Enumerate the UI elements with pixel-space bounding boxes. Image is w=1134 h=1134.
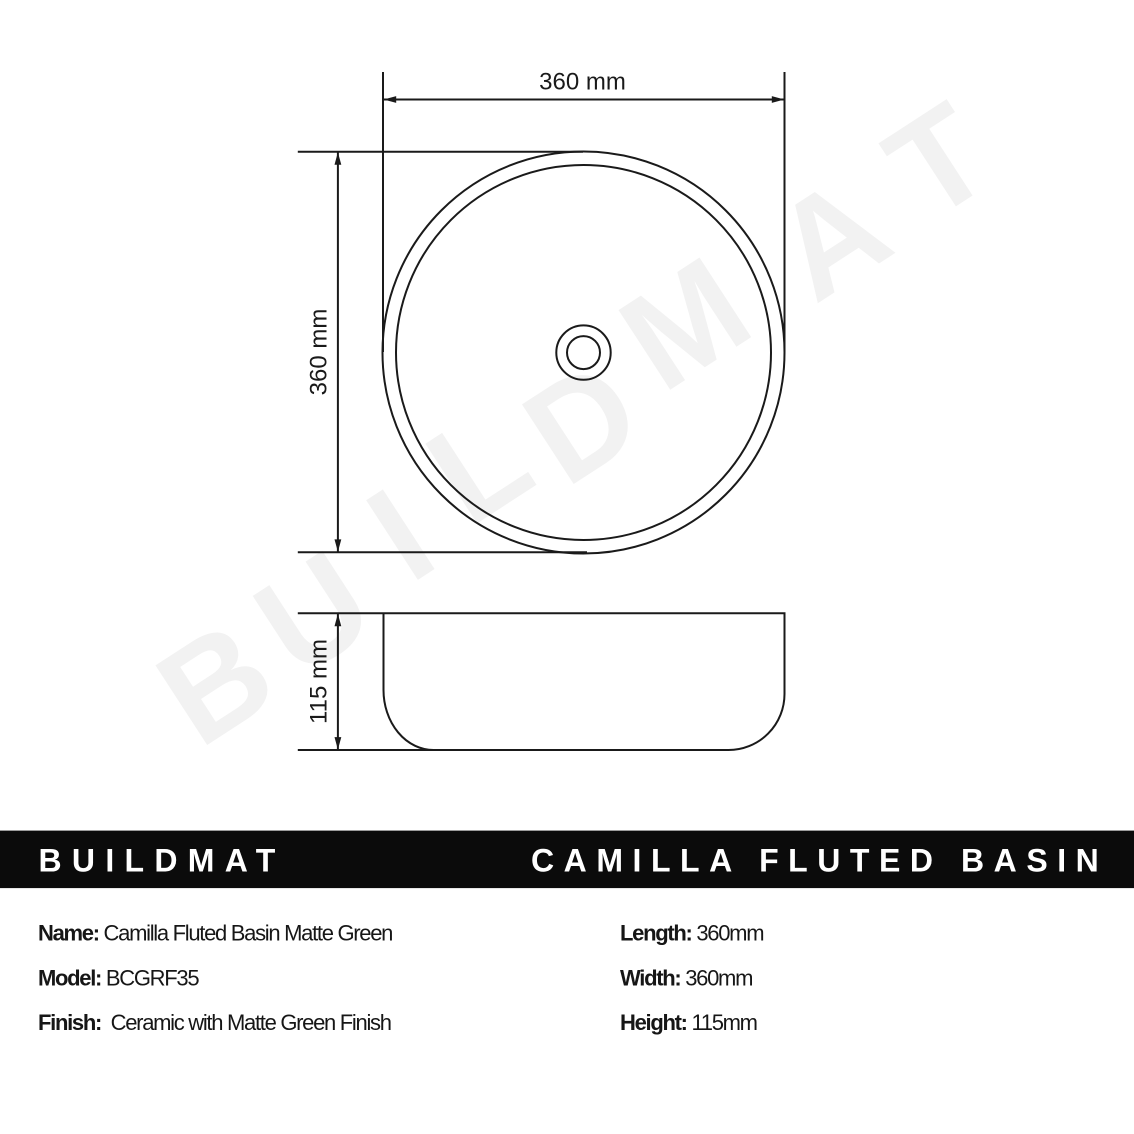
svg-text:Model: BCGRF35: Model: BCGRF35 xyxy=(38,965,199,990)
svg-text:Width: 360mm: Width: 360mm xyxy=(620,965,752,990)
svg-text:Finish: Ceramic with Matte Gr: Finish: Ceramic with Matte Green Finish xyxy=(38,1010,391,1035)
svg-text:Name: Camilla Fluted Basin Mat: Name: Camilla Fluted Basin Matte Green xyxy=(38,920,392,945)
svg-text:Height: 115mm: Height: 115mm xyxy=(620,1010,757,1035)
svg-text:115 mm: 115 mm xyxy=(306,639,333,724)
svg-text:Length: 360mm: Length: 360mm xyxy=(620,920,763,945)
svg-text:BUILDMAT: BUILDMAT xyxy=(39,843,286,879)
svg-text:CAMILLA FLUTED BASIN: CAMILLA FLUTED BASIN xyxy=(531,843,1108,879)
svg-text:360 mm: 360 mm xyxy=(539,69,626,96)
svg-text:360 mm: 360 mm xyxy=(306,309,333,396)
